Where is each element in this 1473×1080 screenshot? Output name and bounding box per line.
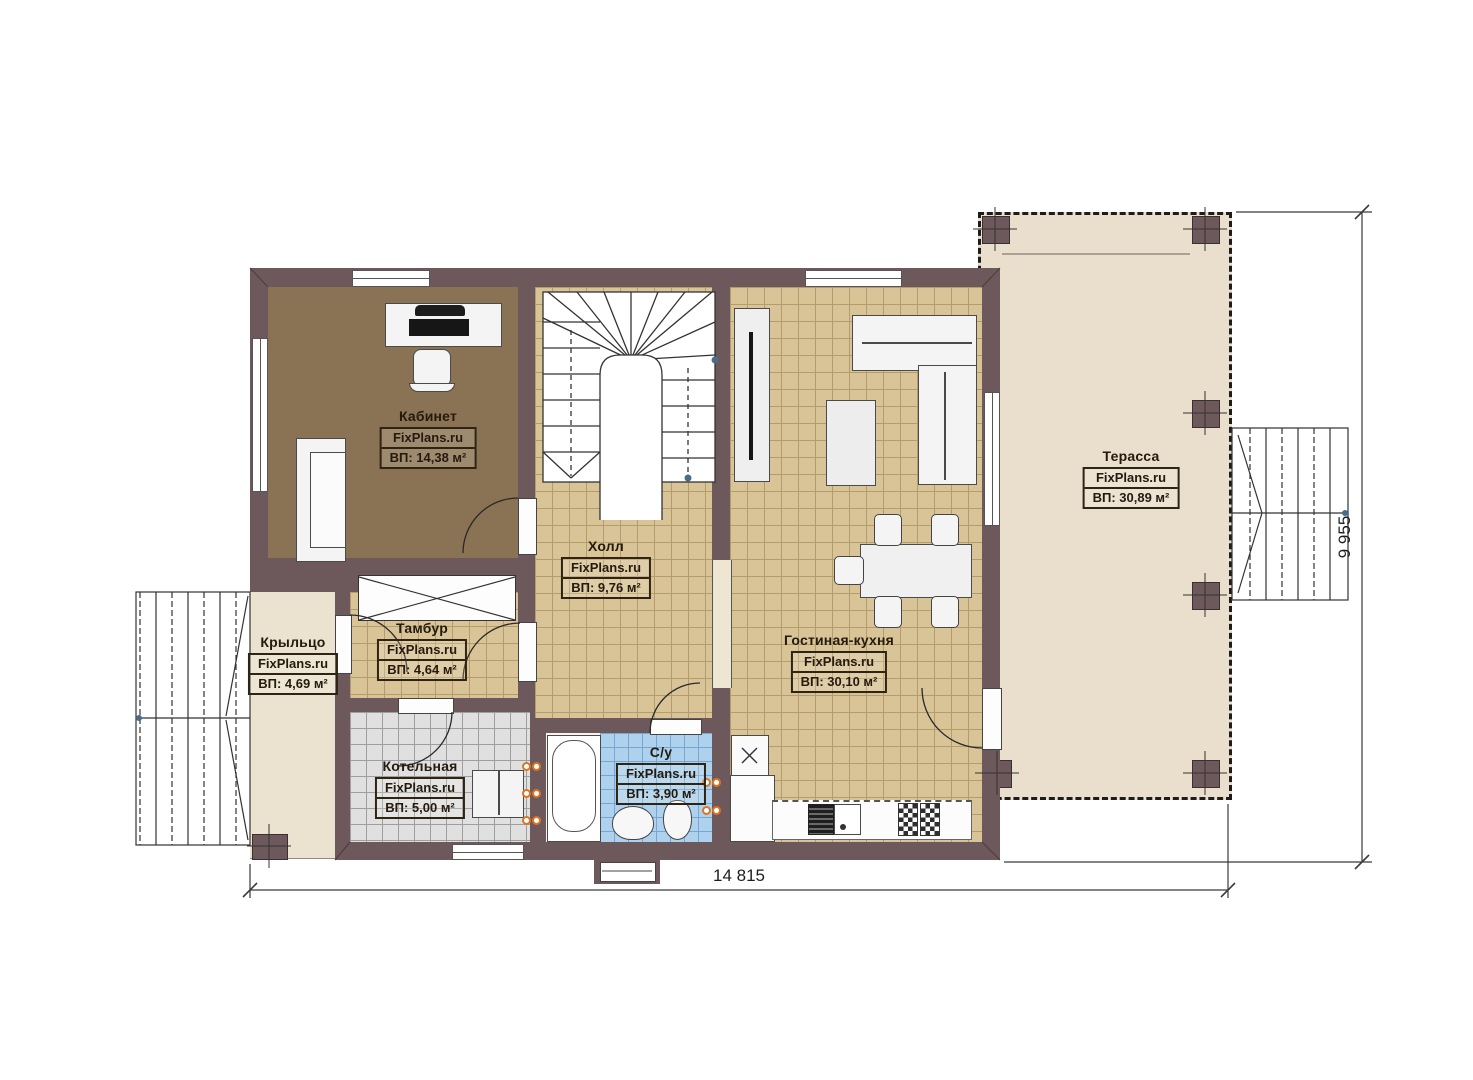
office-sofa-seat [310, 452, 346, 548]
room-area: ВП: 5,00 м² [377, 799, 463, 817]
terrace-pillar [1192, 216, 1220, 244]
room-label-box: FixPlans.ru ВП: 5,00 м² [375, 777, 465, 819]
watermark-text: FixPlans.ru [382, 429, 475, 449]
porch-stairs [136, 592, 250, 845]
room-name: Котельная [382, 758, 457, 774]
dining-table [860, 544, 972, 598]
floor-plan: Кабинет FixPlans.ru ВП: 14,38 м² Холл Fi… [0, 0, 1473, 1080]
office-computer [409, 319, 469, 336]
bath-sink [612, 806, 654, 840]
room-label-box: FixPlans.ru ВП: 3,90 м² [616, 763, 706, 805]
window-boiler-bottom [452, 844, 524, 860]
dimension-width: 14 815 [713, 866, 765, 886]
room-label-box: FixPlans.ru ВП: 4,64 м² [377, 639, 467, 681]
boiler-divider [498, 771, 500, 815]
room-name: Холл [588, 538, 624, 554]
room-area: ВП: 9,76 м² [563, 579, 649, 597]
door-su-leaf [650, 719, 702, 735]
room-label-box: FixPlans.ru ВП: 4,69 м² [248, 653, 338, 695]
kitchen-counter [772, 800, 972, 840]
room-label-tambur: Тамбур FixPlans.ru ВП: 4,64 м² [377, 620, 467, 681]
terrace-pillar [1192, 400, 1220, 428]
office-printer [415, 305, 465, 316]
terrace-pillar [982, 216, 1010, 244]
wall-right [982, 287, 1000, 860]
room-label-box: FixPlans.ru ВП: 30,10 м² [791, 651, 888, 693]
room-label-box: FixPlans.ru ВП: 9,76 м² [561, 557, 651, 599]
watermark-text: FixPlans.ru [379, 641, 465, 661]
radiator [522, 816, 541, 825]
bathtub-basin [552, 740, 596, 832]
stove-burners [898, 803, 918, 836]
room-name: Тамбур [396, 620, 448, 636]
room-area: ВП: 30,89 м² [1085, 489, 1178, 507]
room-label-holl: Холл FixPlans.ru ВП: 9,76 м² [561, 538, 651, 599]
room-name: Терасса [1103, 448, 1160, 464]
room-label-box: FixPlans.ru ВП: 30,89 м² [1083, 467, 1180, 509]
stove-burners [920, 803, 940, 836]
room-label-krylco: Крыльцо FixPlans.ru ВП: 4,69 м² [248, 634, 338, 695]
room-name: Гостиная-кухня [784, 632, 894, 648]
room-area: ВП: 30,10 м² [793, 673, 886, 691]
porch-pillar [252, 834, 288, 860]
kitchen-appliance [731, 735, 769, 777]
room-label-box: FixPlans.ru ВП: 14,38 м² [380, 427, 477, 469]
kitchen-sink-faucet [840, 824, 846, 830]
terrace-stairs [1232, 428, 1348, 600]
radiator [522, 789, 541, 798]
room-label-kabinet: Кабинет FixPlans.ru ВП: 14,38 м² [380, 408, 477, 469]
room-area: ВП: 4,69 м² [250, 675, 336, 693]
room-name: Крыльцо [260, 634, 325, 650]
kitchen-dishrack [808, 804, 834, 835]
room-name: С/у [650, 744, 672, 760]
sofa-vertical [918, 365, 977, 485]
watermark-text: FixPlans.ru [618, 765, 704, 785]
window-office-left [252, 338, 268, 492]
dining-chair [834, 556, 864, 585]
room-area: ВП: 3,90 м² [618, 785, 704, 803]
tambur-wardrobe [358, 575, 516, 621]
office-chair [413, 349, 451, 387]
dining-chair [931, 514, 959, 546]
radiator [522, 762, 541, 771]
watermark-text: FixPlans.ru [1085, 469, 1178, 489]
watermark-text: FixPlans.ru [250, 655, 336, 675]
wall-bottom [335, 842, 1000, 860]
door-terrace-leaf [982, 688, 1002, 750]
room-label-su: С/у FixPlans.ru ВП: 3,90 м² [616, 744, 706, 805]
radiator [702, 806, 721, 815]
room-label-terassa: Терасса FixPlans.ru ВП: 30,89 м² [1083, 448, 1180, 509]
dimension-height: 9 955 [1335, 516, 1355, 559]
door-tambur-hall-leaf [518, 622, 537, 682]
room-holl-floor [535, 287, 712, 718]
office-chair-back [409, 383, 455, 392]
dining-chair [874, 514, 902, 546]
door-kotelnaya-leaf [398, 698, 454, 714]
window-office-top [352, 270, 430, 287]
room-label-gostinaya: Гостиная-кухня FixPlans.ru ВП: 30,10 м² [784, 632, 894, 693]
coffee-table [826, 400, 876, 486]
sofa-cushion-line [862, 342, 972, 344]
kitchen-counter-left [730, 775, 775, 842]
sofa-cushion-line [944, 372, 946, 480]
door-office-leaf [518, 498, 537, 555]
kitchen-sink [834, 804, 861, 835]
room-label-kotelnaya: Котельная FixPlans.ru ВП: 5,00 м² [375, 758, 465, 819]
opening-hall-living [712, 560, 732, 688]
room-area: ВП: 4,64 м² [379, 661, 465, 679]
tv-cabinet [734, 308, 770, 482]
room-area: ВП: 14,38 м² [382, 449, 475, 467]
room-name: Кабинет [399, 408, 457, 424]
dining-chair [874, 596, 902, 628]
terrace-pillar [1192, 760, 1220, 788]
rear-step-tread [600, 862, 656, 882]
toilet [663, 800, 692, 840]
terrace-pillar [1192, 582, 1220, 610]
porch-deck [250, 592, 336, 859]
watermark-text: FixPlans.ru [377, 779, 463, 799]
watermark-text: FixPlans.ru [563, 559, 649, 579]
window-living-top [805, 270, 902, 287]
watermark-text: FixPlans.ru [793, 653, 886, 673]
window-living-right [984, 392, 1000, 526]
dining-chair [931, 596, 959, 628]
